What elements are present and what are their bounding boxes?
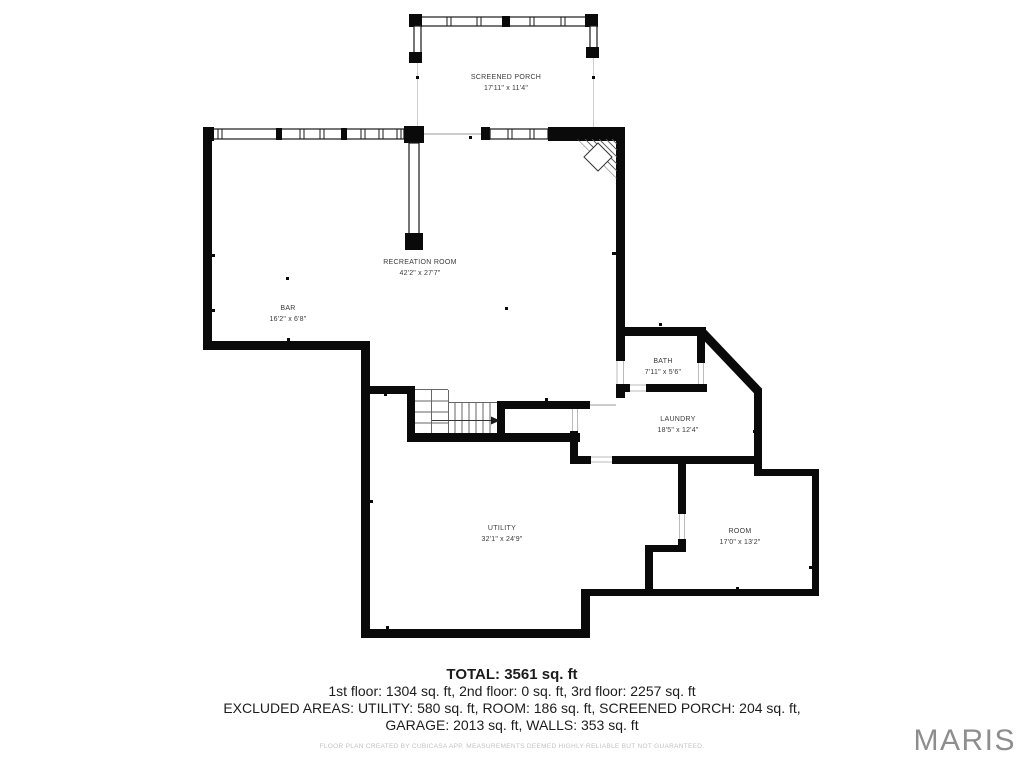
room-name: ROOM [720,526,761,537]
room-label-screened-porch: SCREENED PORCH 17'11" x 11'4" [471,72,541,94]
room-label-laundry: LAUNDRY 18'5" x 12'4" [658,414,699,436]
room-label-bath: BATH 7'11" x 5'6" [645,356,681,378]
room-name: BAR [270,303,307,314]
window-bands [203,126,625,143]
room-dims: 16'2" x 6'8" [270,314,307,325]
room-name: SCREENED PORCH [471,72,541,83]
room-dims: 18'5" x 12'4" [658,425,699,436]
room-name: RECREATION ROOM [383,257,457,268]
maris-watermark: MARIS [913,724,1016,758]
summary-floors: 1st floor: 1304 sq. ft, 2nd floor: 0 sq.… [0,683,1024,700]
area-summary: TOTAL: 3561 sq. ft 1st floor: 1304 sq. f… [0,666,1024,734]
disclaimer-text: FLOOR PLAN CREATED BY CUBICASA APP. MEAS… [0,743,1024,750]
room-name: LAUNDRY [658,414,699,425]
corner-stairs-hatch [577,139,617,179]
room-dims: 42'2" x 27'7" [383,268,457,279]
stairs [415,390,500,434]
summary-total: TOTAL: 3561 sq. ft [0,666,1024,683]
room-dims: 7'11" x 5'6" [645,367,681,378]
room-dims: 32'1" x 24'9" [482,534,523,545]
interior-walls [361,143,762,596]
room-label-recreation-room: RECREATION ROOM 42'2" x 27'7" [383,257,457,279]
summary-excluded-2: GARAGE: 2013 sq. ft, WALLS: 353 sq. ft [0,717,1024,734]
room-label-utility: UTILITY 32'1" x 24'9" [482,523,523,545]
room-dims: 17'11" x 11'4" [471,83,541,94]
summary-excluded-1: EXCLUDED AREAS: UTILITY: 580 sq. ft, ROO… [0,700,1024,717]
room-dims: 17'0" x 13'2" [720,537,761,548]
floor-plan-drawing [0,0,1024,767]
room-label-bar: BAR 16'2" x 6'8" [270,303,307,325]
room-label-room: ROOM 17'0" x 13'2" [720,526,761,548]
exterior-walls [203,127,819,638]
floor-plan-page: SCREENED PORCH 17'11" x 11'4" RECREATION… [0,0,1024,767]
room-name: BATH [645,356,681,367]
room-name: UTILITY [482,523,523,534]
